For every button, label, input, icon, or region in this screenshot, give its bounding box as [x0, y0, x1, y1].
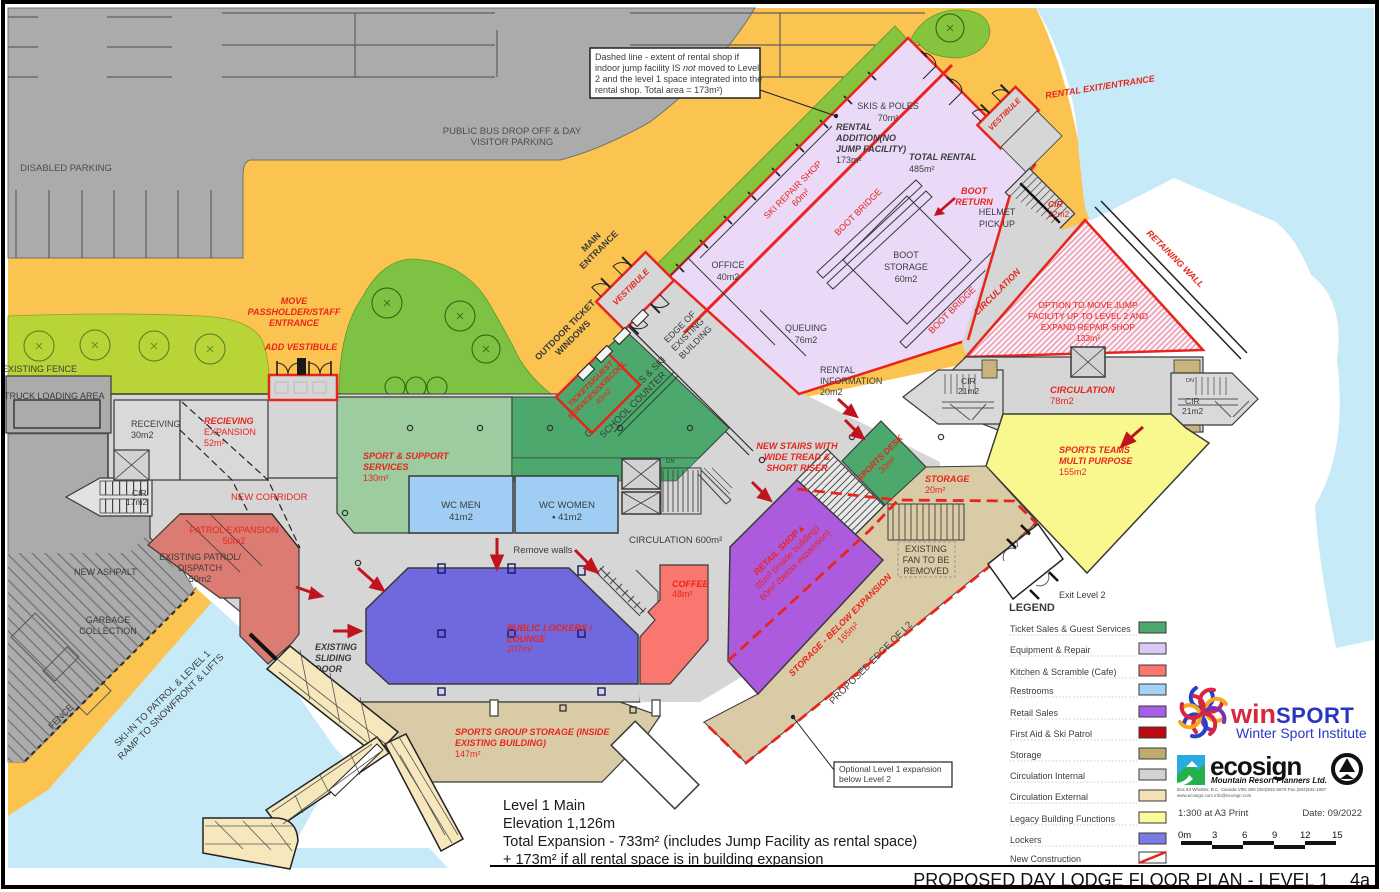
svg-text:Level 1 Main: Level 1 Main [503, 798, 585, 814]
svg-text:PUBLIC BUS DROP OFF & DAY: PUBLIC BUS DROP OFF & DAY [443, 126, 582, 137]
svg-text:Circulation Internal: Circulation Internal [1010, 771, 1085, 781]
svg-text:Box 83 Whistler, B.C. Canada V: Box 83 Whistler, B.C. Canada V0N 1B0 (60… [1177, 787, 1327, 792]
svg-text:Ticket Sales & Guest Services: Ticket Sales & Guest Services [1010, 624, 1131, 634]
svg-text:173m²: 173m² [836, 155, 862, 165]
svg-text:LOUNGE: LOUNGE [507, 634, 546, 644]
svg-text:21m2: 21m2 [1182, 406, 1204, 416]
svg-text:ADDITION(NO: ADDITION(NO [835, 133, 896, 143]
svg-text:20m²: 20m² [925, 485, 946, 495]
svg-text:Mountain Resort Planners Ltd.: Mountain Resort Planners Ltd. [1211, 776, 1327, 785]
svg-text:JUMP FACILITY): JUMP FACILITY) [836, 144, 906, 154]
svg-text:17m2: 17m2 [126, 497, 148, 507]
svg-text:Lockers: Lockers [1010, 835, 1042, 845]
svg-text:EXISTING FENCE: EXISTING FENCE [2, 364, 77, 374]
svg-text:HELMET: HELMET [979, 207, 1016, 217]
svg-text:rental shop. Total area = 173m: rental shop. Total area = 173m²) [595, 85, 723, 95]
svg-text:EXISTING: EXISTING [905, 544, 947, 554]
svg-text:BOOT: BOOT [961, 186, 989, 196]
svg-text:Elevation 1,126m: Elevation 1,126m [503, 816, 615, 832]
svg-text:MULTI PURPOSE: MULTI PURPOSE [1059, 456, 1133, 466]
svg-text:COFFEE: COFFEE [672, 579, 709, 589]
svg-text:78m2: 78m2 [1050, 396, 1074, 407]
svg-text:70m²: 70m² [878, 113, 899, 123]
svg-text:BOOT: BOOT [893, 250, 919, 260]
svg-text:DN: DN [1186, 378, 1194, 384]
svg-text:EXISTING PATROL/: EXISTING PATROL/ [159, 552, 241, 562]
svg-text:SHORT RISER: SHORT RISER [766, 463, 828, 473]
svg-text:Optional Level 1 expansion: Optional Level 1 expansion [839, 764, 942, 774]
svg-text:FACILITY UP TO LEVEL 2 AND: FACILITY UP TO LEVEL 2 AND [1028, 311, 1148, 321]
svg-text:below Level 2: below Level 2 [839, 774, 891, 784]
svg-text:PATROL EXPANSION: PATROL EXPANSION [190, 525, 279, 535]
svg-text:CIR: CIR [1048, 199, 1064, 209]
svg-text:DISPATCH: DISPATCH [178, 563, 222, 573]
svg-text:50m2: 50m2 [223, 536, 246, 546]
svg-text:CIRCULATION: CIRCULATION [1050, 385, 1116, 396]
svg-text:PASSHOLDER/STAFF: PASSHOLDER/STAFF [248, 307, 341, 317]
svg-text:Legacy Building Functions: Legacy Building Functions [1010, 814, 1116, 824]
svg-text:Equipment & Repair: Equipment & Repair [1010, 645, 1091, 655]
svg-text:FAN TO BE: FAN TO BE [903, 555, 950, 565]
svg-text:EXPAND REPAIR SHOP: EXPAND REPAIR SHOP [1041, 322, 1135, 332]
svg-text:207m²: 207m² [507, 644, 533, 654]
svg-text:RECIEVING: RECIEVING [204, 416, 254, 426]
svg-text:40m2: 40m2 [717, 272, 740, 282]
svg-text:155m2: 155m2 [1059, 467, 1087, 477]
svg-text:OPTION TO MOVE JUMP: OPTION TO MOVE JUMP [1038, 300, 1138, 310]
svg-text:12: 12 [1300, 830, 1311, 841]
svg-text:QUEUING: QUEUING [785, 323, 827, 333]
svg-text:INFORMATION: INFORMATION [820, 376, 882, 386]
svg-text:SPORT & SUPPORT: SPORT & SUPPORT [363, 451, 450, 461]
svg-text:▪ 41m2: ▪ 41m2 [552, 512, 582, 523]
svg-text:147m²: 147m² [455, 749, 481, 759]
svg-text:9: 9 [1272, 830, 1277, 841]
svg-text:SPORTS GROUP STORAGE (INSIDE: SPORTS GROUP STORAGE (INSIDE [455, 727, 610, 737]
svg-text:Restrooms: Restrooms [1010, 686, 1054, 696]
svg-text:50m2: 50m2 [189, 574, 212, 584]
svg-text:NEW ASHPALT: NEW ASHPALT [74, 567, 137, 577]
svg-text:DN: DN [666, 459, 675, 465]
svg-text:133m²: 133m² [1076, 333, 1100, 343]
svg-text:VISITOR PARKING: VISITOR PARKING [471, 137, 554, 148]
svg-text:EXISTING BUILDING): EXISTING BUILDING) [455, 738, 546, 748]
svg-text:PICK UP: PICK UP [979, 219, 1015, 229]
svg-text:21m2: 21m2 [958, 386, 980, 396]
svg-text:52m²: 52m² [204, 438, 225, 448]
svg-text:STORAGE: STORAGE [884, 262, 928, 272]
svg-text:0m: 0m [1178, 830, 1191, 841]
svg-text:CIR: CIR [961, 376, 976, 386]
svg-text:RENTAL: RENTAL [820, 365, 855, 375]
svg-text:MOVE: MOVE [281, 296, 309, 306]
svg-text:15: 15 [1332, 830, 1343, 841]
svg-text:NEW CORRIDOR: NEW CORRIDOR [231, 492, 308, 503]
svg-text:NEW STAIRS WITH: NEW STAIRS WITH [756, 441, 838, 451]
svg-text:WC MEN: WC MEN [441, 500, 481, 511]
svg-text:Exit Level 2: Exit Level 2 [1059, 590, 1106, 600]
svg-text:2 and the level 1 space integr: 2 and the level 1 space integrated into … [595, 74, 762, 84]
svg-text:76m2: 76m2 [795, 335, 818, 345]
svg-text:Circulation External: Circulation External [1010, 792, 1088, 802]
svg-text:EXISTING: EXISTING [315, 642, 357, 652]
svg-text:indoor jump facility IS not mo: indoor jump facility IS not moved to Lev… [595, 63, 759, 73]
svg-text:COLLECTION: COLLECTION [79, 626, 137, 636]
svg-text:RECEIVING: RECEIVING [131, 419, 181, 429]
svg-text:48m²: 48m² [672, 589, 693, 599]
svg-text:SERVICES: SERVICES [363, 462, 409, 472]
svg-text:20m2: 20m2 [820, 387, 843, 397]
svg-text:Dashed line - extent of rental: Dashed line - extent of rental shop if [595, 52, 740, 62]
svg-text:3: 3 [1212, 830, 1217, 841]
svg-text:CIRCULATION 600m²: CIRCULATION 600m² [629, 535, 722, 546]
svg-text:6: 6 [1242, 830, 1247, 841]
svg-text:ADD VESTIBULE: ADD VESTIBULE [264, 342, 339, 352]
svg-text:STORAGE: STORAGE [925, 474, 970, 484]
svg-text:GARBAGE: GARBAGE [86, 615, 131, 625]
svg-text:DISABLED PARKING: DISABLED PARKING [20, 163, 112, 174]
svg-text:Remove walls: Remove walls [513, 545, 572, 556]
svg-text:22m2: 22m2 [1048, 209, 1070, 219]
svg-text:CIR: CIR [1185, 396, 1200, 406]
svg-text:RENTAL: RENTAL [836, 122, 872, 132]
svg-text:130m²: 130m² [363, 473, 389, 483]
svg-text:TOTAL RENTAL: TOTAL RENTAL [909, 152, 976, 162]
svg-text:New Construction: New Construction [1010, 854, 1081, 864]
svg-text:Winter Sport Institute: Winter Sport Institute [1236, 725, 1367, 741]
svg-text:SLIDING: SLIDING [315, 653, 352, 663]
svg-text:Storage: Storage [1010, 750, 1042, 760]
svg-text:OFFICE: OFFICE [712, 260, 745, 270]
svg-text:Total Expansion - 733m² (inclu: Total Expansion - 733m² (includes Jump F… [503, 834, 917, 850]
svg-text:WIDE TREAD &: WIDE TREAD & [764, 452, 830, 462]
svg-text:LEGEND: LEGEND [1009, 602, 1055, 614]
svg-text:60m2: 60m2 [895, 274, 918, 284]
svg-text:Date: 09/2022: Date: 09/2022 [1302, 808, 1362, 819]
svg-text:PUBLIC LOCKERS /: PUBLIC LOCKERS / [507, 623, 594, 633]
svg-text:41m2: 41m2 [449, 512, 473, 523]
svg-text:1:300 at A3 Print: 1:300 at A3 Print [1178, 808, 1249, 819]
svg-text:WC WOMEN: WC WOMEN [539, 500, 595, 511]
svg-text:485m²: 485m² [909, 164, 935, 174]
svg-text:ENTRANCE: ENTRANCE [269, 318, 320, 328]
svg-text:First Aid & Ski Patrol: First Aid & Ski Patrol [1010, 729, 1092, 739]
svg-text:SPORTS TEAMS: SPORTS TEAMS [1059, 445, 1130, 455]
svg-text:REMOVED: REMOVED [903, 566, 949, 576]
svg-text:www.ecosign.com: www.ecosign.com info@ecosign.com [1177, 793, 1252, 798]
svg-text:SKIS & POLES: SKIS & POLES [857, 101, 919, 111]
svg-text:RETURN: RETURN [955, 197, 993, 207]
svg-text:30m2: 30m2 [131, 430, 154, 440]
svg-text:TRUCK LOADING AREA: TRUCK LOADING AREA [4, 391, 105, 401]
svg-text:Kitchen & Scramble (Cafe): Kitchen & Scramble (Cafe) [1010, 667, 1117, 677]
svg-text:Retail Sales: Retail Sales [1010, 708, 1059, 718]
